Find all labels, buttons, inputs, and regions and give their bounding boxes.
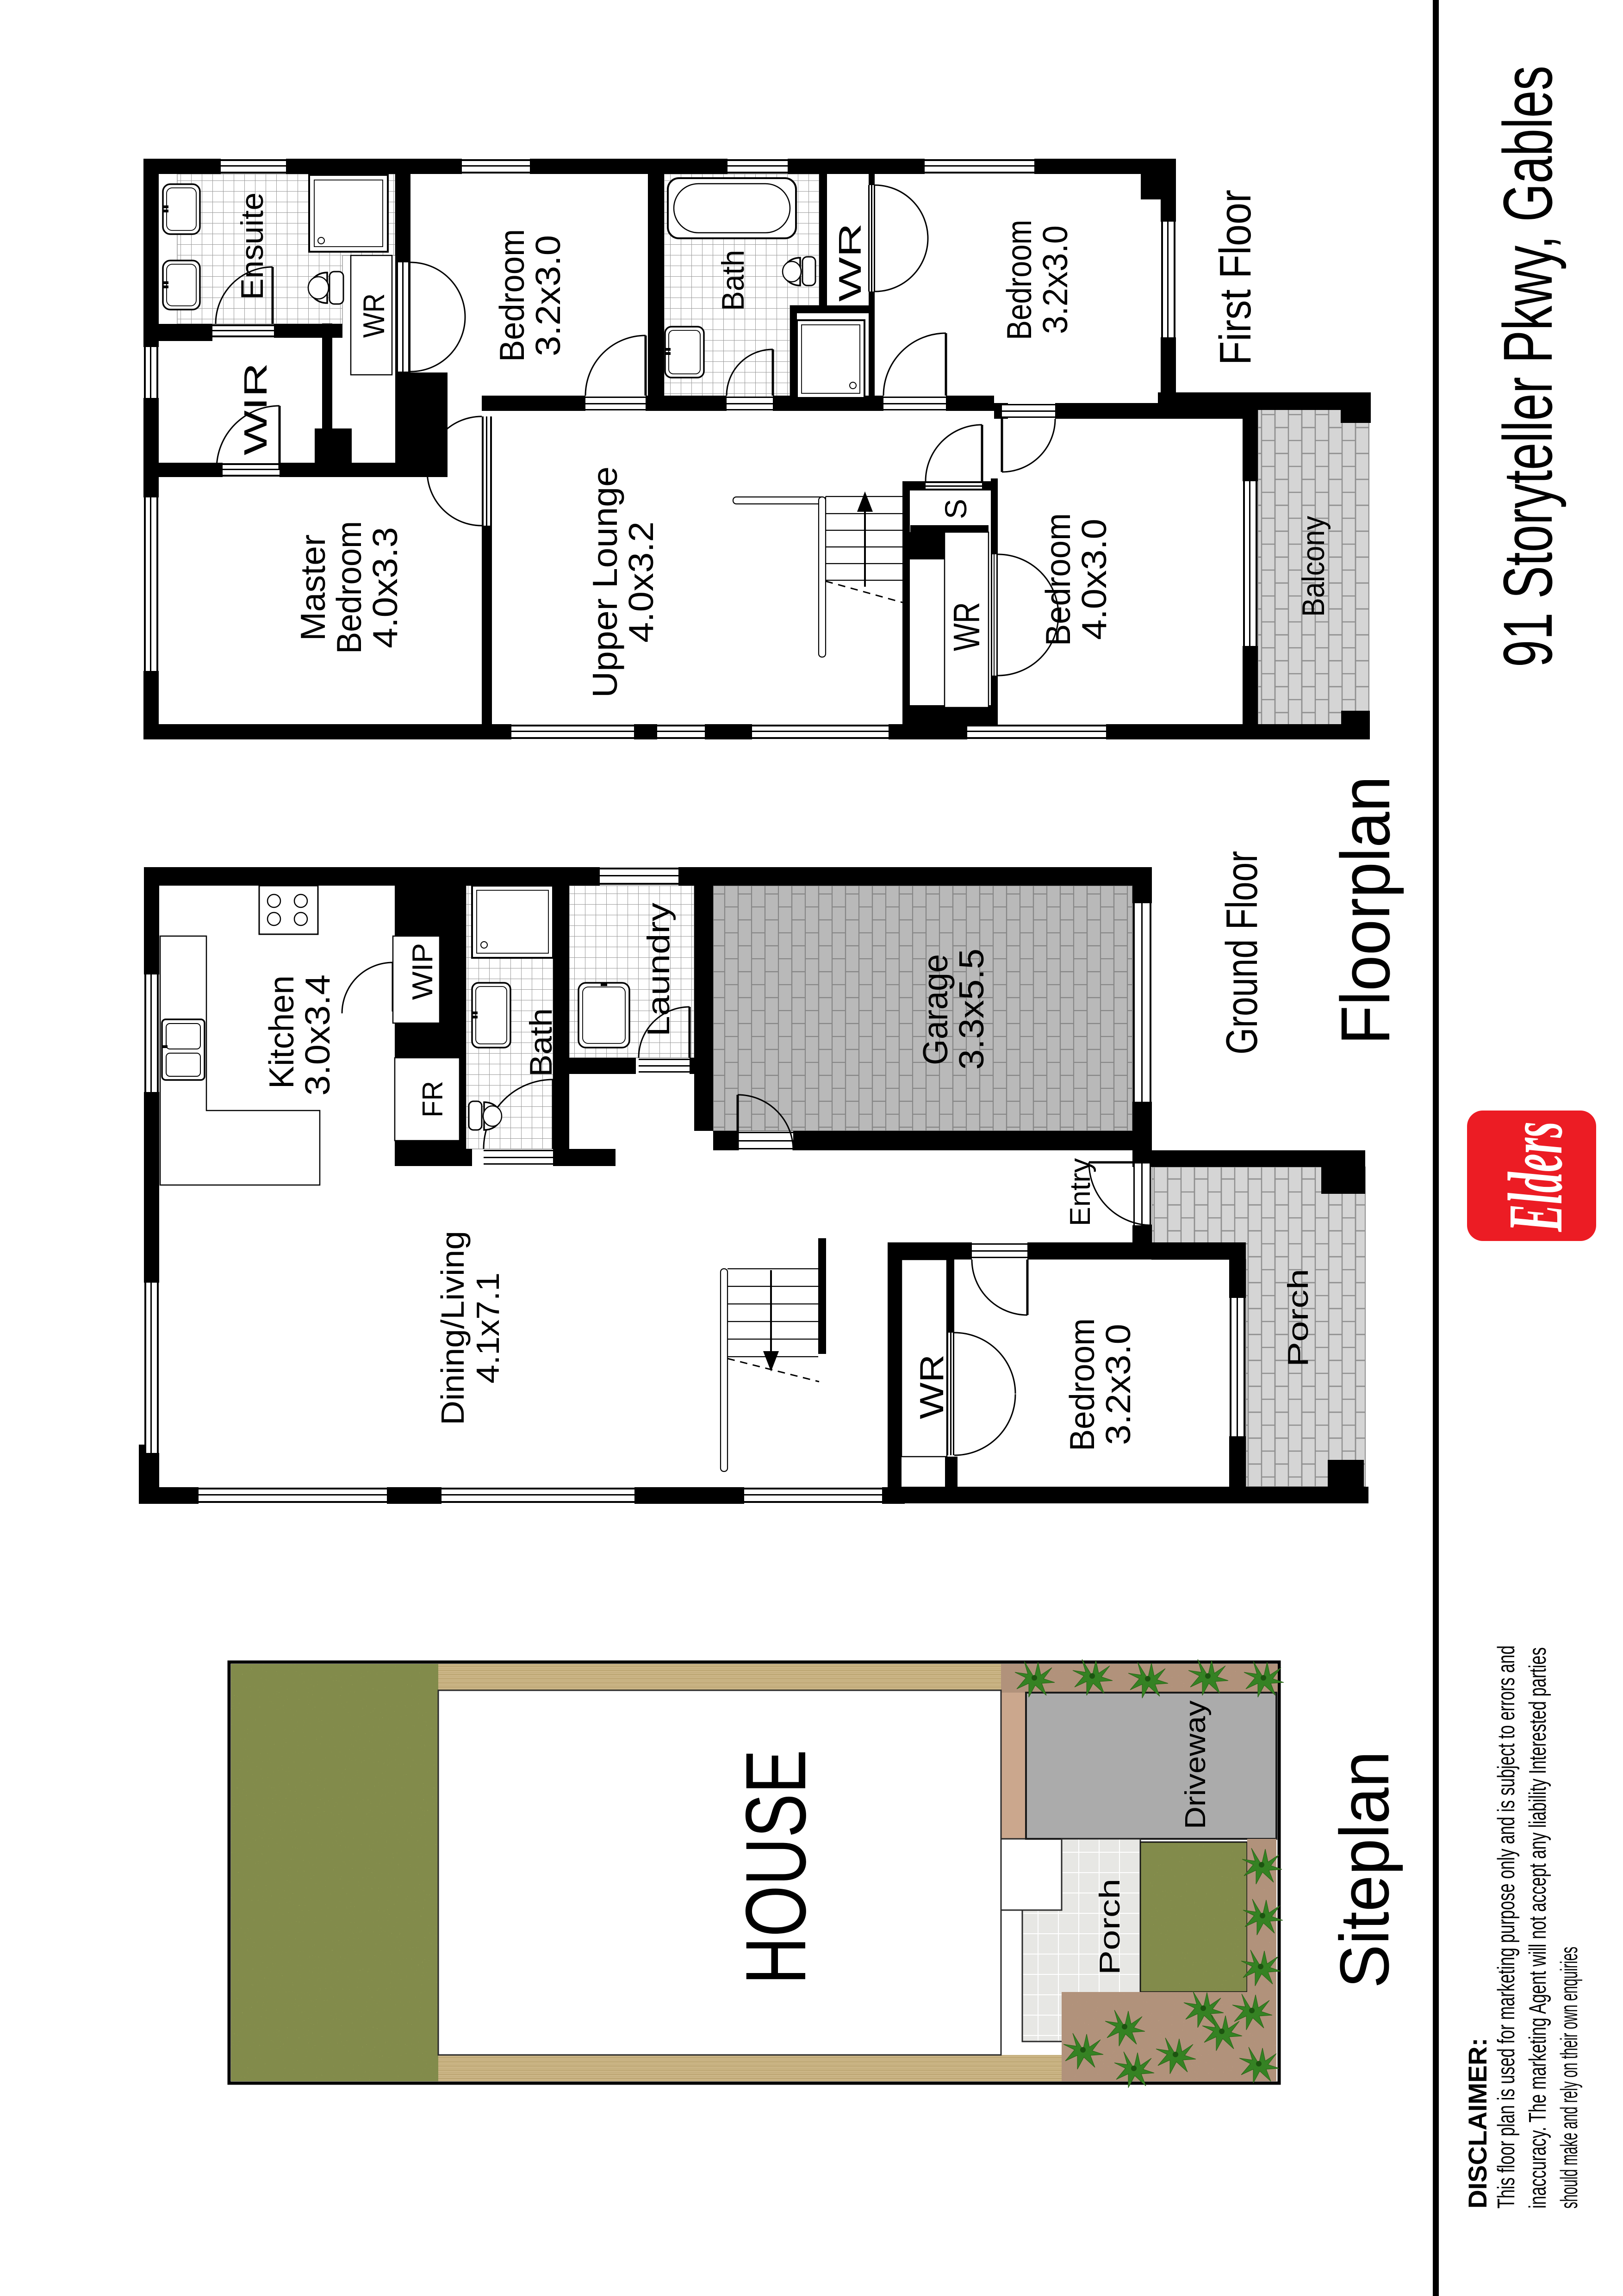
svg-text:WR: WR <box>357 293 391 338</box>
svg-text:Ground Floor: Ground Floor <box>1217 851 1267 1055</box>
svg-text:Bedroom: Bedroom <box>1038 513 1077 646</box>
svg-text:3.2x3.0: 3.2x3.0 <box>1099 1324 1138 1445</box>
svg-text:Driveway: Driveway <box>1180 1700 1212 1829</box>
svg-text:3.2x3.0: 3.2x3.0 <box>529 235 567 356</box>
svg-text:Balcony: Balcony <box>1296 516 1331 617</box>
svg-text:91 Storyteller Pkwy, Gables: 91 Storyteller Pkwy, Gables <box>1489 66 1567 667</box>
svg-text:inaccuracy. The marketing Agen: inaccuracy. The marketing Agent will not… <box>1524 1647 1551 2209</box>
svg-text:Bedroom: Bedroom <box>330 521 368 654</box>
svg-text:Laundry: Laundry <box>641 903 676 1036</box>
svg-text:DISCLAIMER:: DISCLAIMER: <box>1463 2038 1492 2209</box>
svg-text:HOUSE: HOUSE <box>728 1750 824 1985</box>
svg-text:4.0x3.0: 4.0x3.0 <box>1075 519 1113 640</box>
svg-text:Entry: Entry <box>1064 1158 1096 1226</box>
svg-text:Bath: Bath <box>523 1008 559 1077</box>
svg-text:3.0x3.4: 3.0x3.4 <box>298 974 337 1096</box>
svg-text:Upper Lounge: Upper Lounge <box>585 466 624 698</box>
svg-text:FR: FR <box>417 1081 449 1117</box>
svg-text:4.1x7.1: 4.1x7.1 <box>470 1272 506 1384</box>
svg-text:4.0x3.2: 4.0x3.2 <box>622 521 660 643</box>
svg-text:Master: Master <box>293 534 332 641</box>
svg-text:Garage: Garage <box>916 954 955 1065</box>
svg-text:Siteplan: Siteplan <box>1325 1751 1403 1988</box>
svg-text:WR: WR <box>833 223 868 302</box>
svg-text:Elders: Elders <box>1492 1122 1579 1232</box>
svg-text:S: S <box>939 499 973 519</box>
svg-text:First Floor: First Floor <box>1211 190 1260 365</box>
svg-text:WIP: WIP <box>407 943 439 1000</box>
svg-text:Ensuite: Ensuite <box>235 192 270 300</box>
svg-text:Porch: Porch <box>1282 1269 1314 1367</box>
svg-text:Bedroom: Bedroom <box>1000 220 1038 340</box>
svg-text:WR: WR <box>946 602 987 651</box>
svg-text:4.0x3.3: 4.0x3.3 <box>366 527 404 648</box>
svg-text:Bedroom: Bedroom <box>492 229 531 362</box>
svg-text:Bedroom: Bedroom <box>1063 1318 1101 1451</box>
svg-text:Porch: Porch <box>1094 1879 1126 1975</box>
svg-text:WR: WR <box>914 1354 951 1419</box>
svg-text:3.3x5.5: 3.3x5.5 <box>952 949 991 1070</box>
svg-text:Floorplan: Floorplan <box>1326 776 1404 1045</box>
svg-text:Dining/Living: Dining/Living <box>435 1231 471 1425</box>
svg-text:3.2x3.0: 3.2x3.0 <box>1036 225 1075 334</box>
svg-text:Bath: Bath <box>715 250 751 311</box>
svg-text:should make and rely on their: should make and rely on their own enquir… <box>1556 1947 1583 2209</box>
svg-text:Kitchen: Kitchen <box>262 975 301 1089</box>
svg-text:WIR: WIR <box>237 363 274 455</box>
svg-text:This floor plan is used for ma: This floor plan is used for marketing pu… <box>1493 1645 1520 2209</box>
